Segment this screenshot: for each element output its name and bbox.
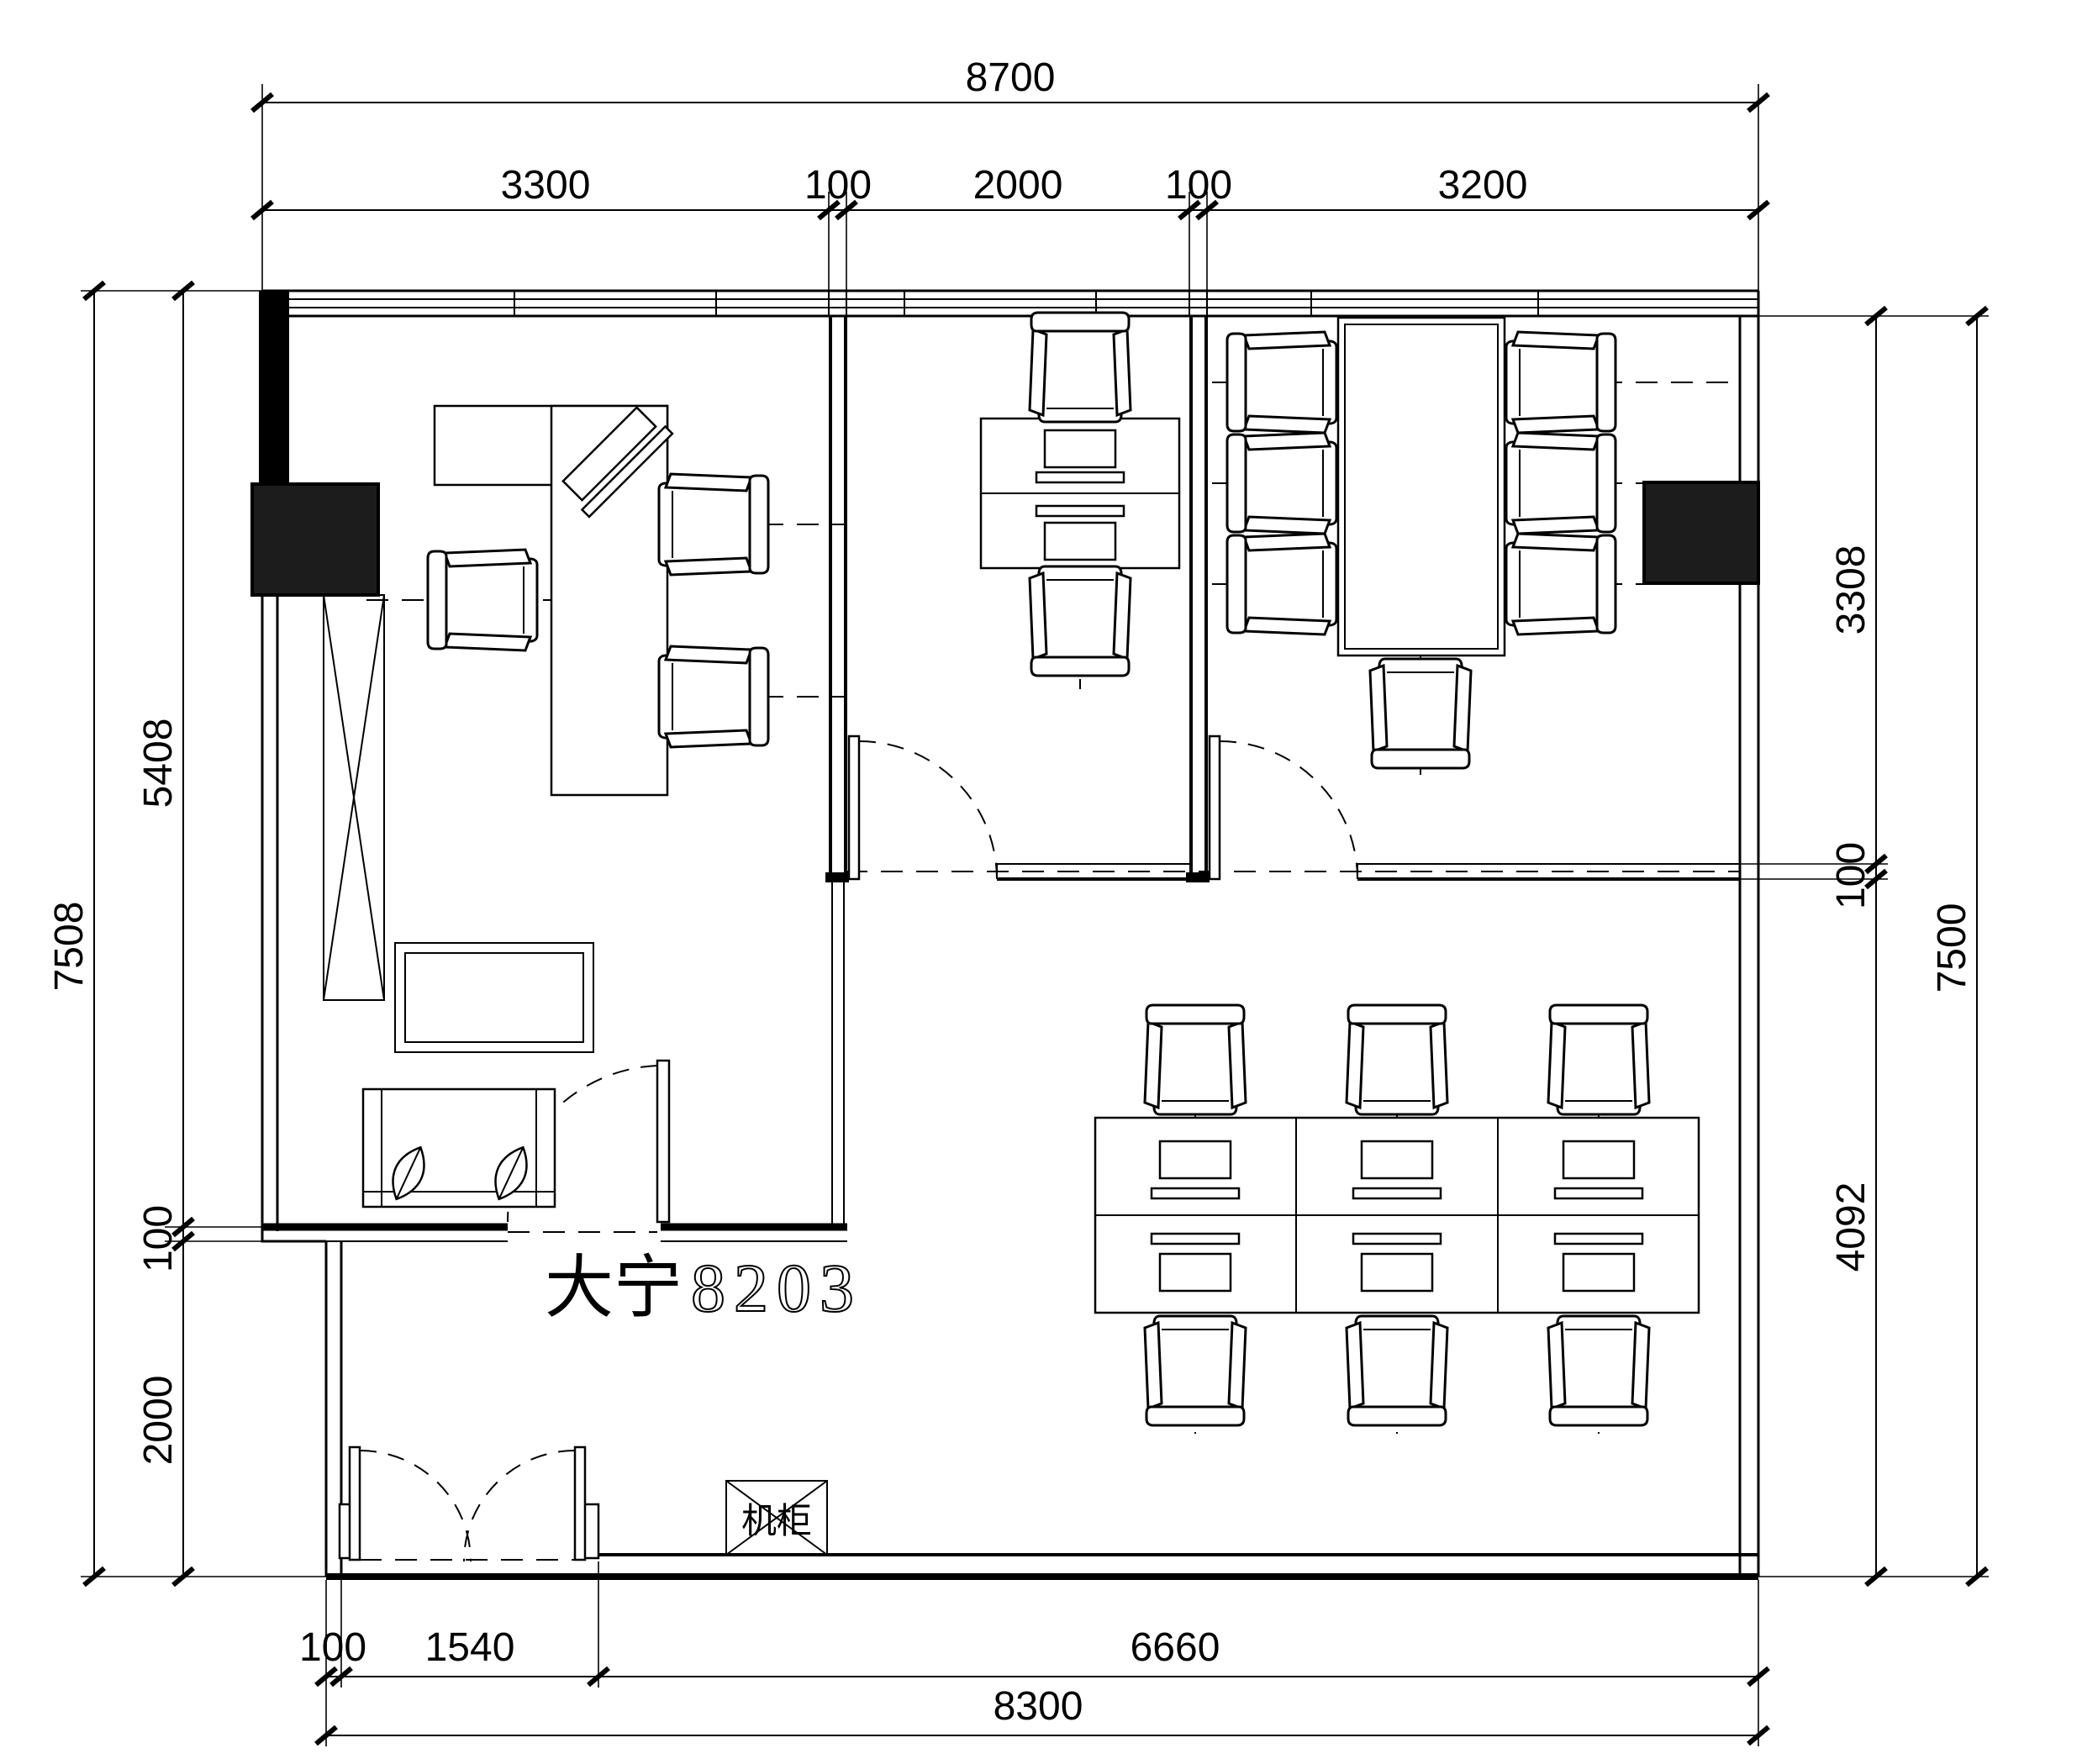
workstation-chair-top-1 bbox=[1145, 1005, 1246, 1114]
office-exec-chair bbox=[428, 550, 537, 650]
dim-top-seg-3: 2000 bbox=[973, 163, 1063, 208]
office-room bbox=[324, 403, 768, 1207]
middle-desk bbox=[981, 419, 1179, 568]
dim-right-seg-2: 100 bbox=[1829, 842, 1874, 909]
dimension-right: 3308 100 4092 7500 bbox=[1740, 308, 1989, 1585]
workstation-chair-top-3 bbox=[1548, 1005, 1649, 1114]
dim-left-seg-2: 100 bbox=[136, 1205, 181, 1272]
top-window-band bbox=[262, 291, 1758, 316]
rack-cabinet: 机柜 bbox=[726, 1481, 827, 1555]
entrance-double-door bbox=[340, 1447, 598, 1561]
workstation-cluster bbox=[1095, 1118, 1699, 1313]
office-shaft bbox=[324, 595, 384, 1000]
dim-right-seg-1: 3308 bbox=[1829, 545, 1874, 635]
workstation-chair-bottom-3 bbox=[1548, 1316, 1649, 1425]
floor-plan-canvas: 机柜 大宁 8203 8700 3300 100 2000 100 3200 7… bbox=[0, 0, 2082, 1764]
meeting-chair-left-3 bbox=[1227, 534, 1336, 635]
office-guest-chair-2 bbox=[659, 646, 768, 747]
workstation-chair-bottom-2 bbox=[1347, 1316, 1447, 1425]
partition-office-middle bbox=[825, 316, 849, 1227]
office-coffee-table bbox=[395, 943, 593, 1052]
meeting-chair-left-2 bbox=[1227, 433, 1336, 534]
meeting-chair-right-3 bbox=[1506, 534, 1616, 635]
office-guest-chair-1 bbox=[659, 474, 768, 575]
middle-chair-bottom bbox=[1030, 566, 1131, 676]
room-title: 大宁 8203 bbox=[545, 1250, 862, 1326]
dim-top-seg-4: 100 bbox=[1165, 163, 1232, 208]
office-planter-bench bbox=[363, 1089, 555, 1207]
column-right bbox=[1644, 482, 1758, 583]
dimension-top: 8700 3300 100 2000 100 3200 bbox=[252, 55, 1768, 291]
middle-chair-top bbox=[1030, 313, 1131, 422]
dim-left-overall: 7508 bbox=[47, 902, 92, 992]
room-name-cn: 大宁 bbox=[545, 1250, 683, 1326]
dim-top-seg-2: 100 bbox=[804, 163, 872, 208]
meeting-chair-bottom bbox=[1370, 659, 1471, 768]
column-left bbox=[252, 484, 378, 595]
dim-left-seg-1: 5408 bbox=[136, 719, 181, 808]
workstation-chair-top-2 bbox=[1347, 1005, 1447, 1114]
dim-bottom-overall: 8300 bbox=[994, 1684, 1083, 1729]
middle-room bbox=[981, 313, 1179, 676]
meeting-room bbox=[1227, 318, 1616, 768]
room-number: 8203 bbox=[691, 1250, 862, 1326]
meeting-room-door bbox=[1210, 736, 1357, 879]
dim-right-overall: 7500 bbox=[1930, 903, 1974, 993]
middle-room-door bbox=[849, 736, 997, 879]
workstation-chair-bottom-1 bbox=[1145, 1316, 1246, 1425]
dim-bottom-seg-3: 6660 bbox=[1131, 1625, 1220, 1670]
meeting-chair-left-1 bbox=[1227, 332, 1336, 433]
bottom-wall bbox=[326, 1555, 1758, 1577]
dim-top-seg-5: 3200 bbox=[1438, 163, 1528, 208]
dim-left-seg-3: 2000 bbox=[136, 1376, 181, 1466]
dim-bottom-seg-1: 100 bbox=[299, 1625, 366, 1670]
partition-middle-meeting bbox=[1186, 316, 1210, 882]
meeting-chair-right-1 bbox=[1506, 332, 1616, 433]
dimension-bottom: 100 1540 6660 8300 bbox=[299, 1561, 1768, 1746]
dim-top-overall: 8700 bbox=[966, 55, 1056, 100]
office-south-wall bbox=[262, 1227, 847, 1241]
dim-right-seg-3: 4092 bbox=[1829, 1182, 1874, 1272]
rack-label: 机柜 bbox=[741, 1503, 812, 1541]
conference-table bbox=[1338, 318, 1505, 656]
dim-bottom-seg-2: 1540 bbox=[425, 1625, 515, 1670]
dim-top-seg-1: 3300 bbox=[501, 163, 591, 208]
open-office-area bbox=[1095, 1005, 1699, 1425]
meeting-chair-right-2 bbox=[1506, 433, 1616, 534]
